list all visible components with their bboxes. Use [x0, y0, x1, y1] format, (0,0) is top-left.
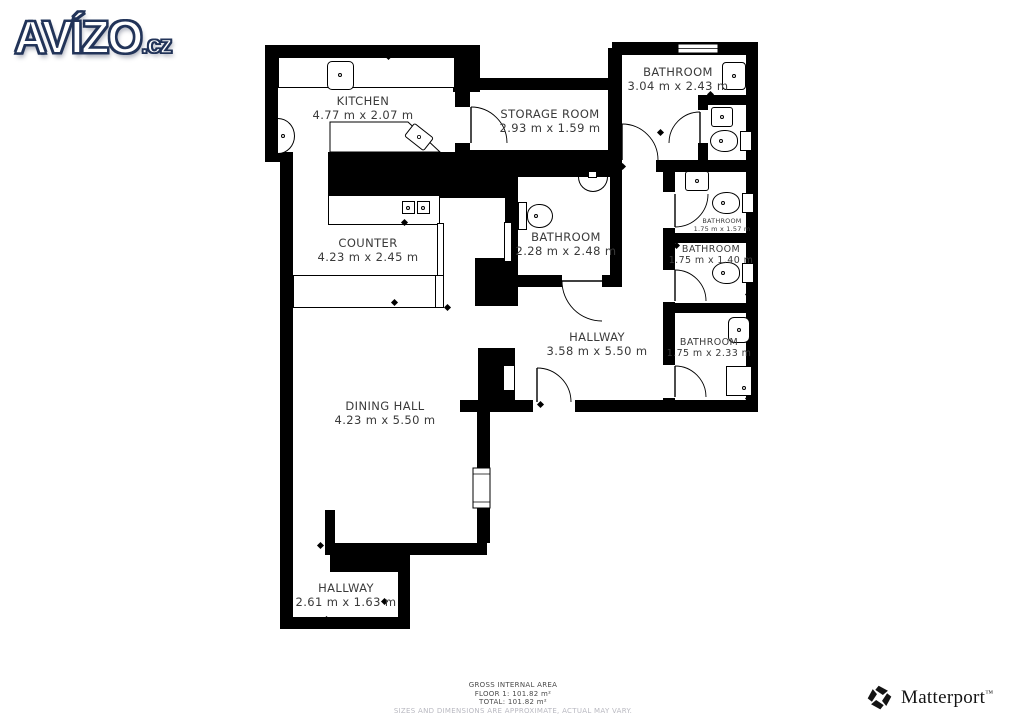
matterport-logo: Matterport™: [866, 684, 993, 711]
toilet-bowl: [712, 192, 740, 214]
counter-long-edge: [435, 275, 444, 308]
matterport-logo-text: Matterport™: [901, 687, 993, 709]
room-label-hallway-bottom: HALLWAY 2.61 m x 1.63 m: [295, 582, 396, 609]
wall: [475, 258, 518, 306]
kitchen-sink-angled: [405, 123, 434, 150]
toilet-tank: [518, 202, 527, 230]
door-entrance: [537, 368, 571, 402]
wall: [333, 543, 487, 555]
wall: [663, 303, 758, 313]
room-label-bathroom-top: BATHROOM 3.04 m x 2.43 m: [627, 66, 728, 93]
room-name: HALLWAY: [546, 331, 647, 345]
room-label-bathroom-mid: BATHROOM 2.28 m x 2.48 m: [515, 231, 616, 258]
shower-tray: [726, 366, 752, 396]
room-label-counter: COUNTER 4.23 m x 2.45 m: [317, 237, 418, 264]
toilet-dot: [721, 271, 725, 275]
wall: [608, 48, 622, 162]
kitchen-counter-angled: [330, 122, 440, 152]
washbasin-dot: [737, 328, 741, 332]
sink-dot: [421, 206, 425, 210]
room-name: BATHROOM: [515, 231, 616, 245]
marker-tick: [317, 542, 324, 549]
toilet-dot: [719, 139, 723, 143]
counter-edge: [437, 223, 444, 277]
avizo-logo-tld: .cz: [141, 31, 171, 59]
wall: [462, 78, 614, 90]
room-label-dining: DINING HALL 4.23 m x 5.50 m: [334, 400, 435, 427]
room-dims: 1.75 m x 1.57 m: [694, 226, 751, 234]
sink-basin: [578, 177, 608, 192]
toilet-dot: [534, 214, 538, 218]
heater-dot: [281, 134, 285, 138]
wall: [280, 152, 293, 629]
room-name: DINING HALL: [334, 400, 435, 414]
shower-dot: [742, 386, 746, 390]
faucet: [588, 171, 597, 178]
room-label-kitchen: KITCHEN 4.77 m x 2.07 m: [312, 95, 413, 122]
room-name: COUNTER: [317, 237, 418, 251]
room-dims: 1.75 m x 2.33 m: [667, 348, 752, 359]
room-dims: 4.23 m x 2.45 m: [317, 251, 418, 265]
sink-dot: [695, 179, 699, 183]
counter-long: [293, 275, 443, 308]
door-bathroom-r3: [675, 366, 706, 397]
wall: [663, 233, 758, 243]
footer-total-area: TOTAL: 101.82 m²: [479, 698, 547, 706]
room-label-hallway-main: HALLWAY 3.58 m x 5.50 m: [546, 331, 647, 358]
avizo-logo: AVÍZO.cz: [14, 10, 172, 64]
toilet-bowl: [527, 204, 553, 228]
toilet-tank: [740, 131, 752, 151]
sink-dot: [406, 206, 410, 210]
marker-tick: [444, 304, 451, 311]
toilet-dot: [721, 201, 725, 205]
room-label-storage: STORAGE ROOM 2.93 m x 1.59 m: [499, 108, 600, 135]
footer-floor-area: FLOOR 1: 101.82 m²: [475, 690, 552, 698]
wall: [698, 95, 708, 110]
avizo-logo-text: AVÍZO: [14, 11, 141, 63]
footer-disclaimer: SIZES AND DIMENSIONS ARE APPROXIMATE, AC…: [394, 707, 632, 715]
room-name: BATHROOM: [669, 244, 754, 255]
marker-tick: [657, 129, 664, 136]
room-name: STORAGE ROOM: [499, 108, 600, 122]
door-bathroom-mid: [562, 281, 602, 321]
room-dims: 2.28 m x 2.48 m: [515, 245, 616, 259]
room-dims: 4.77 m x 2.07 m: [312, 109, 413, 123]
room-label-bathroom-r2: BATHROOM 1.75 m x 1.40 m: [669, 244, 754, 266]
counter-edge: [504, 222, 512, 262]
matterport-pinwheel-icon: [866, 684, 893, 711]
wall: [477, 403, 490, 543]
room-dims: 1.75 m x 1.40 m: [669, 255, 754, 266]
room-name: BATHROOM: [667, 337, 752, 348]
room-dims: 2.93 m x 1.59 m: [499, 122, 600, 136]
footer-area-title: GROSS INTERNAL AREA: [469, 681, 558, 689]
room-name: BATHROOM: [627, 66, 728, 80]
sink-dot: [417, 135, 420, 138]
faucet-dot: [338, 73, 342, 77]
toilet-tank: [742, 263, 754, 283]
door-toilet-room: [669, 112, 700, 143]
wall: [663, 165, 675, 192]
sink-dot: [720, 115, 724, 119]
wall: [610, 165, 622, 287]
wall: [265, 45, 465, 57]
room-name: HALLWAY: [295, 582, 396, 596]
wall: [505, 165, 622, 177]
floor-plan-page: AVÍZO.cz: [0, 0, 1024, 724]
wall: [575, 400, 758, 412]
room-label-bathroom-r1: BATHROOM 1.75 m x 1.57 m: [694, 218, 751, 233]
toilet-bowl: [710, 130, 738, 152]
wall: [612, 42, 758, 55]
room-label-bathroom-r3: BATHROOM 1.75 m x 2.33 m: [667, 337, 752, 359]
room-name: KITCHEN: [312, 95, 413, 109]
wall: [602, 275, 622, 287]
room-dims: 4.23 m x 5.50 m: [334, 414, 435, 428]
door-frame-inset: [503, 365, 515, 391]
room-dims: 2.61 m x 1.63 m: [295, 596, 396, 610]
door-bathroom-r2: [675, 270, 706, 301]
room-dims: 3.04 m x 2.43 m: [627, 80, 728, 94]
wall: [280, 617, 410, 629]
marker-tick: [537, 401, 544, 408]
kitchen-counter: [278, 57, 455, 88]
toilet-tank: [742, 193, 754, 213]
door-bathroom-top: [622, 124, 658, 160]
wall: [265, 45, 278, 162]
wall: [455, 90, 470, 107]
sink-dot: [732, 74, 736, 78]
room-dims: 3.58 m x 5.50 m: [546, 345, 647, 359]
trademark-symbol: ™: [985, 688, 993, 697]
